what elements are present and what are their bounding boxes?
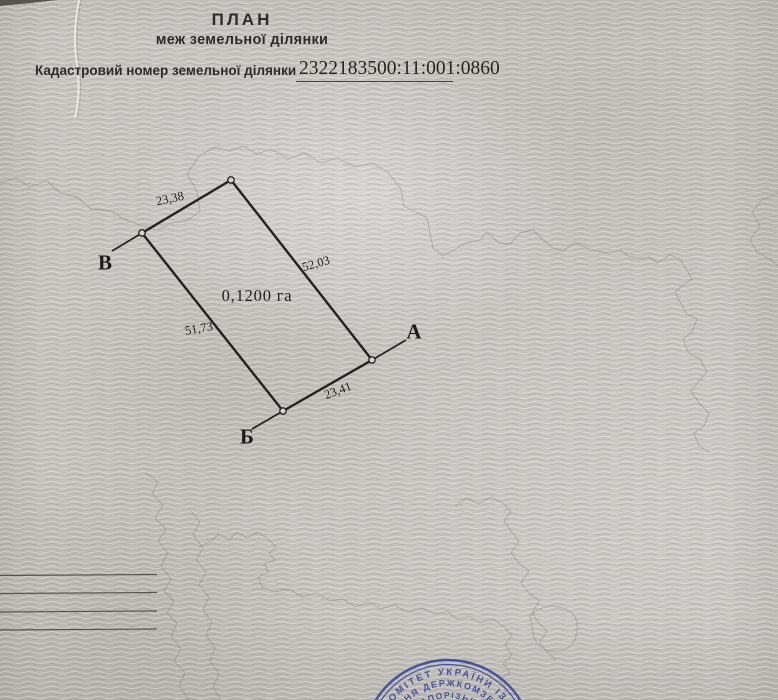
header-block: ПЛАН меж земельної ділянки — [112, 10, 372, 48]
area-label: 0,1200 га — [222, 286, 293, 306]
cadastral-underline — [296, 81, 453, 82]
vertex-marker — [139, 230, 145, 236]
cadastral-label: Кадастровий номер земельної ділянки — [35, 63, 296, 78]
paper-background: ОМІТЕТ УКРАЇНИ ІЗ ІННЯ ДЕРЖКОМЗЕМ У ЗАПО… — [0, 0, 778, 700]
vertex-label-a: А — [406, 320, 421, 345]
vertex-label-v: В — [98, 251, 112, 276]
page-subtitle: меж земельної ділянки — [112, 32, 372, 48]
scanned-plan-page: ОМІТЕТ УКРАЇНИ ІЗ ІННЯ ДЕРЖКОМЗЕМ У ЗАПО… — [0, 0, 778, 700]
page-title: ПЛАН — [112, 10, 372, 30]
vertex-label-b: Б — [240, 425, 254, 450]
cadastral-number: 2322183500:11:001:0860 — [299, 58, 500, 80]
vertex-marker — [280, 408, 286, 414]
vertex-marker — [228, 177, 234, 183]
vertex-marker — [369, 357, 375, 363]
